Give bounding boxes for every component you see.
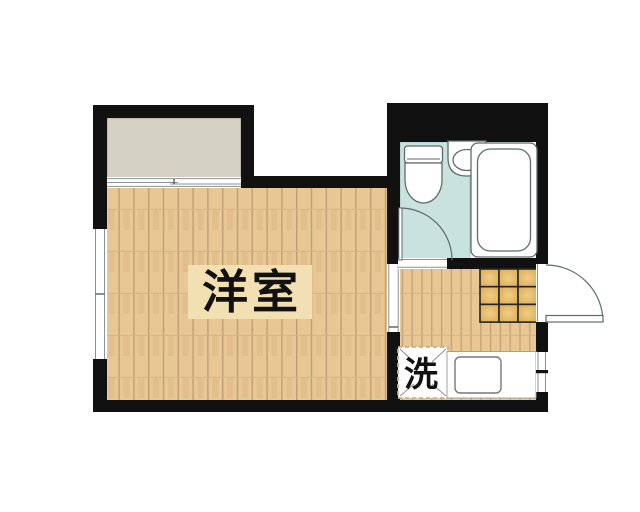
room-divider-opening <box>387 264 400 332</box>
entrance-tile <box>480 269 499 287</box>
wall-bottom <box>93 400 548 412</box>
balcony-sliding-window <box>107 177 241 188</box>
wall-right-upper <box>536 103 548 266</box>
floor-plan: 洗 洋室 <box>0 0 640 512</box>
washer-space: 洗 <box>398 347 448 398</box>
wall-bathroom-top-block <box>390 103 546 142</box>
entrance-tile <box>518 287 537 305</box>
entrance-tile <box>499 287 518 305</box>
kitchen-window-divider <box>536 370 548 373</box>
entrance-tile <box>518 269 537 287</box>
floor-plan-canvas: 洗 洋室 <box>0 0 640 512</box>
wall-balcony-top <box>93 105 253 118</box>
wall-balcony-right <box>241 105 254 188</box>
toilet-tank <box>405 146 443 163</box>
entrance-tile <box>480 287 499 305</box>
kitchen-sink <box>455 357 501 393</box>
main-room-label: 洋室 <box>202 266 302 318</box>
left-window <box>93 229 107 359</box>
kitchen-window <box>536 352 548 392</box>
bathroom-threshold <box>398 258 447 269</box>
entrance-door-leaf <box>546 316 603 323</box>
wall-right-middle <box>536 320 548 354</box>
entrance-tile <box>499 269 518 287</box>
toilet-bowl <box>405 163 442 203</box>
entrance-tile-grid <box>480 269 537 322</box>
wall-right-lower <box>536 390 548 412</box>
bathtub <box>471 143 537 257</box>
entrance-tile <box>518 304 537 322</box>
bathroom-door-leaf <box>399 208 402 260</box>
wall-bathroom-bottom <box>447 258 544 269</box>
balcony-area <box>107 118 241 178</box>
main-room-label-group: 洋室 <box>188 265 312 319</box>
bathtub-inner <box>478 149 531 251</box>
wall-left-upper <box>93 105 107 230</box>
entrance-tile <box>480 304 499 322</box>
toilet <box>405 146 443 203</box>
kitchen-counter <box>447 352 536 399</box>
entrance-tile <box>499 304 518 322</box>
washer-label: 洗 <box>404 356 438 394</box>
wall-top-middle <box>241 176 400 188</box>
